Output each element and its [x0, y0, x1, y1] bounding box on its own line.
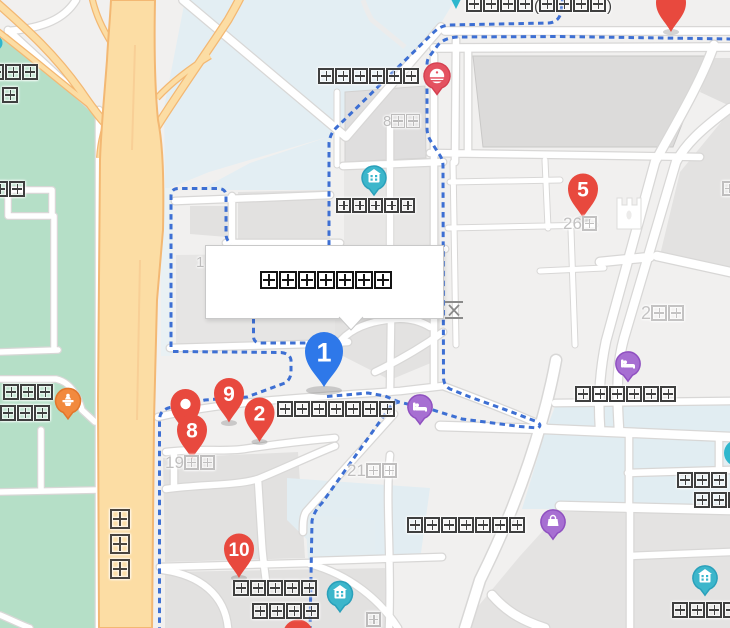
svg-text:2: 2: [254, 403, 266, 426]
svg-text:5: 5: [577, 179, 589, 202]
svg-text:1: 1: [316, 338, 331, 368]
svg-text:10: 10: [228, 540, 249, 561]
svg-text:8: 8: [186, 420, 198, 443]
svg-text:9: 9: [223, 383, 235, 406]
